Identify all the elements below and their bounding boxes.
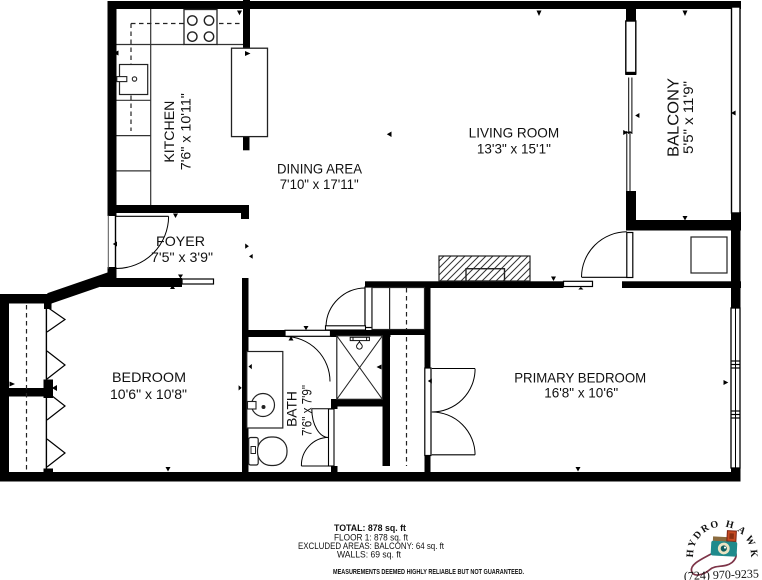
svg-text:K: K: [748, 549, 760, 558]
svg-text:DINING AREA: DINING AREA: [277, 161, 363, 176]
svg-text:LIVING ROOM: LIVING ROOM: [469, 125, 560, 140]
svg-text:PRIMARY BEDROOM: PRIMARY BEDROOM: [514, 370, 646, 385]
svg-text:O: O: [709, 519, 719, 532]
svg-text:H: H: [724, 519, 734, 532]
svg-text:7'5" x 3'9": 7'5" x 3'9": [151, 250, 213, 265]
svg-text:BALCONY: BALCONY: [666, 78, 683, 157]
svg-text:WALLS: 69 sq. ft: WALLS: 69 sq. ft: [337, 550, 401, 561]
svg-text:W: W: [743, 534, 757, 548]
svg-text:KITCHEN: KITCHEN: [162, 101, 177, 163]
svg-text:13'3" x 15'1": 13'3" x 15'1": [477, 141, 551, 156]
svg-text:BATH: BATH: [285, 391, 300, 427]
svg-text:(724) 970-9235: (724) 970-9235: [684, 566, 759, 580]
svg-text:16'8" x 10'6": 16'8" x 10'6": [544, 386, 618, 401]
svg-text:10'6" x 10'8": 10'6" x 10'8": [110, 387, 187, 402]
svg-text:H: H: [685, 549, 697, 558]
svg-text:5'5" x 11'9": 5'5" x 11'9": [681, 81, 697, 154]
svg-text:FOYER: FOYER: [156, 234, 205, 249]
svg-text:BEDROOM: BEDROOM: [112, 370, 186, 385]
svg-text:MEASUREMENTS DEEMED HIGHLY REL: MEASUREMENTS DEEMED HIGHLY RELIABLE BUT …: [333, 567, 524, 576]
svg-text:A: A: [735, 524, 748, 538]
svg-text:7'6" x 7'9": 7'6" x 7'9": [300, 385, 315, 436]
svg-text:7'6" x 10'11": 7'6" x 10'11": [179, 93, 194, 170]
svg-text:7'10" x 17'11": 7'10" x 17'11": [280, 177, 359, 192]
